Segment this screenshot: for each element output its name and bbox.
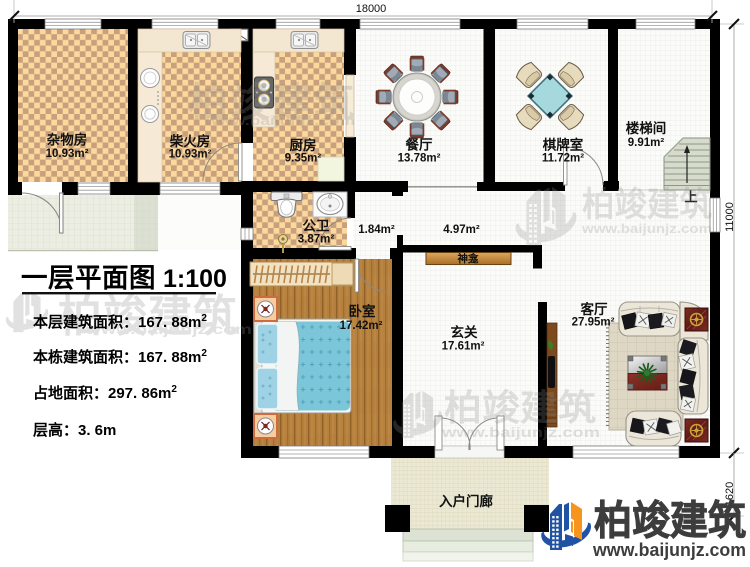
svg-text:17.42m²: 17.42m²	[340, 320, 383, 332]
svg-text:www.baijunjz.com: www.baijunjz.com	[204, 113, 355, 128]
svg-text:www.baijunjz.com: www.baijunjz.com	[441, 425, 600, 440]
svg-text:柏竣建筑: 柏竣建筑	[582, 185, 712, 224]
svg-text:本栋建筑面积：167. 88m2: 本栋建筑面积：167. 88m2	[33, 348, 207, 366]
svg-text:棋牌室: 棋牌室	[543, 137, 584, 153]
svg-text:www.baijunjz.com: www.baijunjz.com	[581, 221, 712, 236]
svg-text:柴火房: 柴火房	[169, 133, 211, 149]
svg-text:层高：3. 6m: 层高：3. 6m	[33, 421, 116, 439]
svg-text:玄关: 玄关	[451, 324, 478, 340]
svg-text:楼梯间: 楼梯间	[626, 120, 667, 136]
svg-text:11.72m²: 11.72m²	[542, 153, 584, 165]
svg-text:公卫: 公卫	[303, 219, 330, 234]
svg-text:www.baijunjz.com: www.baijunjz.com	[592, 540, 746, 560]
svg-text:11000: 11000	[724, 202, 736, 232]
svg-text:27.95m²: 27.95m²	[572, 317, 615, 329]
svg-text:本层建筑面积：167. 88m2: 本层建筑面积：167. 88m2	[33, 313, 207, 331]
svg-text:13.78m²: 13.78m²	[398, 153, 441, 165]
svg-text:1.84m²: 1.84m²	[358, 224, 395, 236]
svg-text:柏竣建筑: 柏竣建筑	[594, 499, 746, 543]
svg-text:卧室: 卧室	[349, 303, 376, 319]
svg-text:3.87m²: 3.87m²	[298, 234, 335, 246]
svg-text:10.93m²: 10.93m²	[169, 149, 212, 161]
svg-text:客厅: 客厅	[580, 301, 609, 317]
svg-text:9.91m²: 9.91m²	[628, 137, 665, 149]
svg-text:占地面积：297. 86m2: 占地面积：297. 86m2	[33, 384, 177, 402]
svg-text:一层平面图: 一层平面图	[21, 263, 156, 293]
svg-text:神龛: 神龛	[458, 252, 479, 265]
svg-text:餐厅: 餐厅	[405, 137, 433, 153]
svg-text:4.97m²: 4.97m²	[443, 224, 480, 236]
svg-text:入户门廊: 入户门廊	[439, 493, 493, 509]
svg-text:17.61m²: 17.61m²	[442, 341, 485, 353]
svg-text:柏竣建筑: 柏竣建筑	[444, 387, 596, 428]
svg-text:杂物房: 杂物房	[47, 132, 88, 148]
svg-text:10.93m²: 10.93m²	[46, 148, 89, 160]
svg-text:9.35m²: 9.35m²	[285, 153, 322, 165]
svg-text:厨房: 厨房	[290, 137, 317, 153]
svg-text:18000: 18000	[356, 3, 387, 15]
svg-text:1:100: 1:100	[163, 265, 227, 293]
